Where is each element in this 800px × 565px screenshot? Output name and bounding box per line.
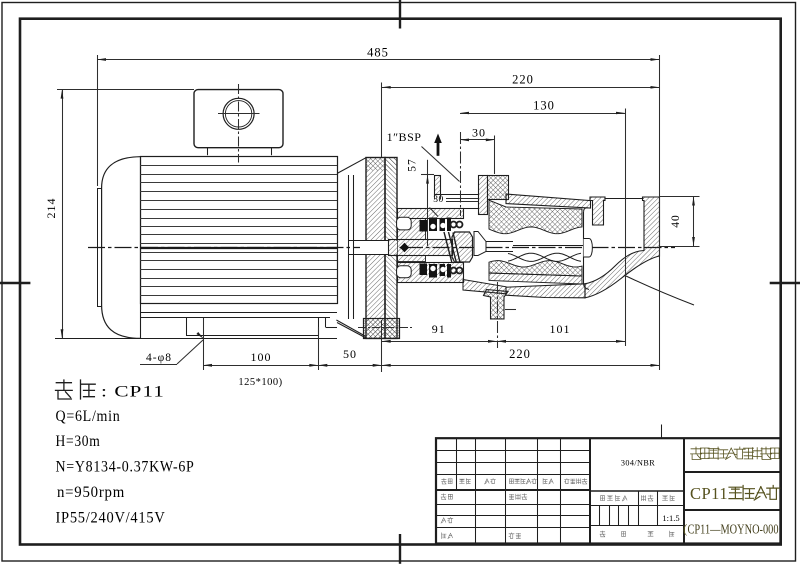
svg-text:50: 50 (343, 347, 357, 361)
svg-text:1″BSP: 1″BSP (387, 130, 422, 144)
svg-text:CP11: CP11 (690, 484, 728, 503)
svg-text:125*100): 125*100) (238, 377, 282, 388)
svg-text:H=30m: H=30m (56, 433, 101, 450)
svg-text:40: 40 (670, 214, 682, 228)
svg-text:IP55/240V/415V: IP55/240V/415V (56, 510, 166, 527)
svg-text:CP11—MOYNO-000: CP11—MOYNO-000 (688, 522, 779, 537)
svg-text:: CP11: : CP11 (101, 384, 165, 401)
svg-text:N=Y8134-0.37KW-6P: N=Y8134-0.37KW-6P (56, 459, 195, 476)
svg-text:130: 130 (533, 99, 555, 113)
svg-text:304/NBR: 304/NBR (621, 459, 655, 468)
svg-text:220: 220 (509, 347, 531, 361)
svg-text:214: 214 (44, 198, 58, 219)
svg-text:57: 57 (407, 158, 419, 172)
svg-text:91: 91 (432, 322, 446, 336)
svg-text:4-φ8: 4-φ8 (146, 352, 172, 364)
svg-text:30: 30 (433, 195, 444, 205)
svg-text:101: 101 (550, 322, 571, 336)
svg-text:30: 30 (472, 126, 486, 140)
svg-text:n=950rpm: n=950rpm (57, 484, 125, 501)
svg-text:100: 100 (251, 350, 272, 364)
svg-text:1:1.5: 1:1.5 (662, 513, 679, 523)
svg-text:220: 220 (512, 72, 534, 86)
svg-text:Q=6L/min: Q=6L/min (56, 408, 121, 425)
svg-text:485: 485 (367, 46, 389, 60)
